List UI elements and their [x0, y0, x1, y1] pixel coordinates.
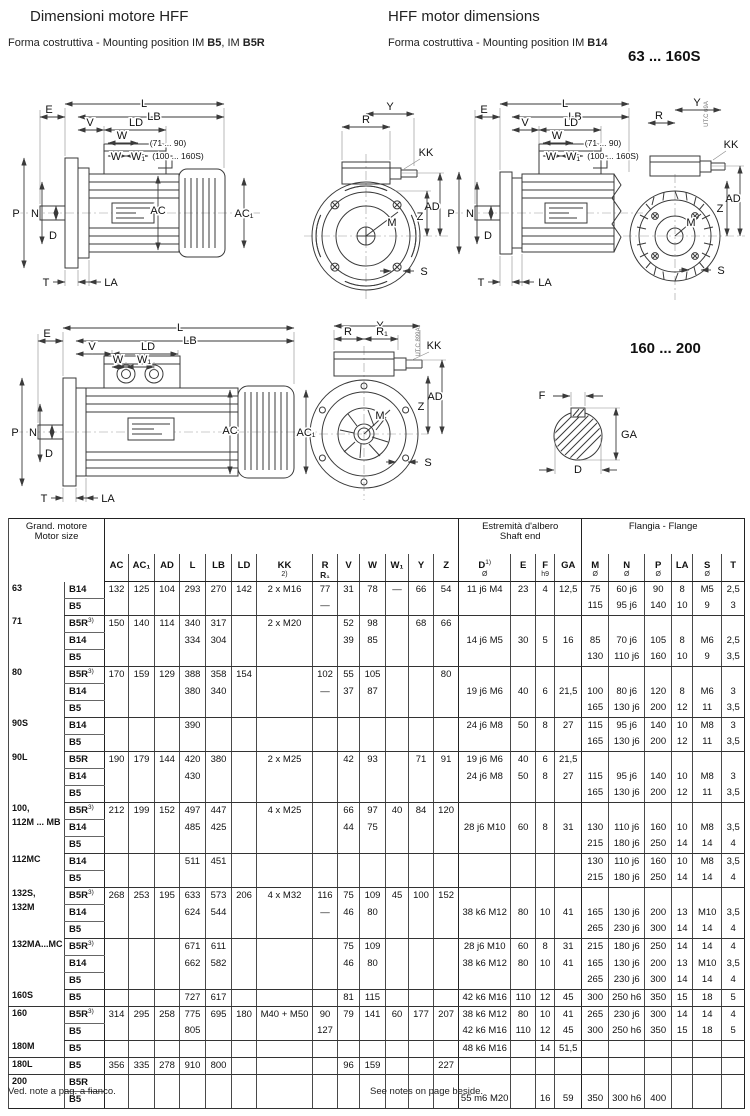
cell-AC1: 140 — [129, 615, 155, 632]
cell-LB: 611 — [206, 938, 232, 955]
page-title-english: HFF motor dimensions — [388, 8, 540, 25]
cell-F — [536, 802, 555, 819]
cell-Z — [434, 1023, 459, 1040]
cell-T: 4 — [722, 870, 745, 887]
cell-D: 19 j6 M6 — [459, 751, 511, 768]
drawing-b5-front-view: Y R KK AD Z M S — [300, 96, 452, 308]
cell-LD — [232, 683, 257, 700]
cell-AD — [155, 819, 180, 836]
cell-L — [180, 734, 206, 751]
cell-AD — [155, 717, 180, 734]
cell-AD — [155, 870, 180, 887]
cell-GA — [555, 1074, 582, 1091]
dim-label-M: M — [686, 217, 695, 229]
cell-GA: 27 — [555, 717, 582, 734]
cell-M — [582, 887, 609, 904]
cell-W1 — [386, 972, 409, 989]
cell-AD: 104 — [155, 582, 180, 599]
cell-Z: 227 — [434, 1057, 459, 1074]
cell-N — [609, 615, 645, 632]
cell-E — [511, 1091, 536, 1108]
dim-label-D: D — [484, 230, 492, 242]
cell-AD — [155, 632, 180, 649]
cell-T — [722, 666, 745, 683]
cell-LA: 8 — [672, 683, 693, 700]
cell-N: 95 j6 — [609, 768, 645, 785]
cell-M: 165 — [582, 734, 609, 751]
cell-M — [582, 751, 609, 768]
motor-size-cell: 90L — [9, 751, 65, 802]
cell-LA: 12 — [672, 734, 693, 751]
cell-LA: 10 — [672, 853, 693, 870]
cell-N: 230 j6 — [609, 921, 645, 938]
dim-label-D: D — [49, 230, 57, 242]
cell-Y — [409, 836, 434, 853]
cell-P: 250 — [645, 938, 672, 955]
dim-label-S: S — [717, 265, 724, 277]
cell-T: 3,5 — [722, 785, 745, 802]
cell-LA — [672, 1091, 693, 1108]
subtitle-right: Forma costruttiva - Mounting position IM… — [388, 37, 607, 49]
cell-M: 215 — [582, 870, 609, 887]
cell-E: 80 — [511, 1006, 536, 1023]
cell-V — [338, 921, 360, 938]
dim-label-M: M — [387, 217, 396, 229]
motor-size-cell: 100, 112M ... MB — [9, 802, 65, 853]
cell-N: 70 j6 — [609, 632, 645, 649]
cell-P: 400 — [645, 1091, 672, 1108]
dim-label-D: D — [574, 464, 582, 476]
cell-LA: 13 — [672, 955, 693, 972]
cell-D — [459, 785, 511, 802]
mounting-variant-cell: B5R3) — [65, 802, 105, 819]
table-row: B5165130 j620012113,5 — [9, 785, 745, 802]
cell-GA — [555, 666, 582, 683]
cell-R: 116 — [313, 887, 338, 904]
dim-label-L: L — [141, 98, 147, 110]
cell-P: 350 — [645, 989, 672, 1006]
cell-S: M5 — [693, 582, 722, 599]
cell-KK — [257, 1091, 313, 1108]
cell-V — [338, 598, 360, 615]
cell-M: 265 — [582, 921, 609, 938]
cell-P: 200 — [645, 955, 672, 972]
mounting-variant-cell: B5R3) — [65, 666, 105, 683]
cell-AC: 132 — [105, 582, 129, 599]
cell-P: 300 — [645, 1006, 672, 1023]
mounting-variant-cell: B5 — [65, 1023, 105, 1040]
cell-S — [693, 1040, 722, 1057]
cell-F — [536, 615, 555, 632]
cell-M: 165 — [582, 785, 609, 802]
table-row: B14662582468038 k6 M12801041165130 j6200… — [9, 955, 745, 972]
table-row: 160B5R3)314295258775695180M40 + M5090791… — [9, 1006, 745, 1023]
cell-KK — [257, 717, 313, 734]
cell-E: 60 — [511, 938, 536, 955]
cell-V: 44 — [338, 819, 360, 836]
cell-S — [693, 615, 722, 632]
cell-V: 39 — [338, 632, 360, 649]
cell-F: 8 — [536, 819, 555, 836]
cell-V: 96 — [338, 1057, 360, 1074]
cell-LD — [232, 989, 257, 1006]
cell-M: 350 — [582, 1091, 609, 1108]
cell-W1 — [386, 1023, 409, 1040]
cell-AD — [155, 853, 180, 870]
cell-LB: 340 — [206, 683, 232, 700]
cell-R — [313, 853, 338, 870]
cell-L: 662 — [180, 955, 206, 972]
cell-P: 200 — [645, 904, 672, 921]
cell-GA: 41 — [555, 904, 582, 921]
cell-KK — [257, 683, 313, 700]
mounting-variant-cell: B5 — [65, 700, 105, 717]
table-row: B5—11595 j61401093 — [9, 598, 745, 615]
cell-W: 109 — [360, 887, 386, 904]
dim-label-KK: KK — [427, 340, 442, 352]
cell-AC1 — [129, 683, 155, 700]
cell-AC1 — [129, 819, 155, 836]
mounting-variant-cell: B14 — [65, 717, 105, 734]
cell-F: 10 — [536, 1006, 555, 1023]
cell-L: 380 — [180, 683, 206, 700]
dimension-lines: L LB E V LD W (71 ... 90) W W₁ (100 ... … — [12, 98, 253, 289]
cell-AC1: 179 — [129, 751, 155, 768]
flange-header-label: Flangia - Flange — [582, 522, 744, 532]
cell-S: M6 — [693, 683, 722, 700]
cell-R: 77 — [313, 582, 338, 599]
cell-V: 46 — [338, 904, 360, 921]
cell-W1 — [386, 598, 409, 615]
cell-LD — [232, 904, 257, 921]
cell-D — [459, 887, 511, 904]
cell-Z — [434, 1040, 459, 1057]
cell-KK: 2 x M20 — [257, 615, 313, 632]
cell-AC: 150 — [105, 615, 129, 632]
cell-R — [313, 802, 338, 819]
dim-label-V: V — [88, 341, 96, 353]
cell-F — [536, 700, 555, 717]
size-range-bottom: 160 ... 200 — [630, 340, 701, 357]
cell-F — [536, 887, 555, 904]
cell-W: 75 — [360, 819, 386, 836]
cell-AC1 — [129, 870, 155, 887]
size-range-top: 63 ... 160S — [628, 48, 701, 65]
cell-T: 4 — [722, 972, 745, 989]
cell-E — [511, 802, 536, 819]
cell-GA: 21,5 — [555, 751, 582, 768]
dim-label-P: P — [11, 427, 18, 439]
cell-LA: 14 — [672, 921, 693, 938]
cell-AC — [105, 1023, 129, 1040]
cell-LA: 12 — [672, 785, 693, 802]
cell-W1 — [386, 751, 409, 768]
cell-R — [313, 751, 338, 768]
cell-KK: 4 x M32 — [257, 887, 313, 904]
cell-R — [313, 768, 338, 785]
cell-LD — [232, 955, 257, 972]
cell-V: 46 — [338, 955, 360, 972]
cell-Z — [434, 683, 459, 700]
cell-M: 130 — [582, 649, 609, 666]
dim-label-LA: LA — [101, 493, 115, 505]
cell-S: 9 — [693, 598, 722, 615]
cell-Z — [434, 717, 459, 734]
cell-E: 80 — [511, 904, 536, 921]
cell-AC: 212 — [105, 802, 129, 819]
cell-V — [338, 1091, 360, 1108]
cell-V: 81 — [338, 989, 360, 1006]
dim-label-LD: LD — [141, 341, 155, 353]
cell-AD: 114 — [155, 615, 180, 632]
cell-AC: 170 — [105, 666, 129, 683]
cell-N: 130 j6 — [609, 734, 645, 751]
cell-W1: 45 — [386, 887, 409, 904]
cell-R — [313, 700, 338, 717]
cell-L — [180, 836, 206, 853]
cell-W1 — [386, 683, 409, 700]
cell-W — [360, 785, 386, 802]
cell-W — [360, 768, 386, 785]
cell-W1 — [386, 836, 409, 853]
cell-P: 160 — [645, 819, 672, 836]
table-row: B5215180 j625014144 — [9, 836, 745, 853]
cell-N: 230 j6 — [609, 1006, 645, 1023]
cell-KK — [257, 1023, 313, 1040]
cell-F: 12 — [536, 989, 555, 1006]
cell-S: M10 — [693, 904, 722, 921]
cell-S: 14 — [693, 938, 722, 955]
cell-D: 14 j6 M5 — [459, 632, 511, 649]
cell-LB — [206, 1023, 232, 1040]
cell-M: 300 — [582, 1023, 609, 1040]
cell-Y: 71 — [409, 751, 434, 768]
col-header-LD: LD — [232, 554, 257, 582]
motor-outline — [449, 144, 745, 300]
cell-AC1 — [129, 1023, 155, 1040]
cell-S — [693, 1057, 722, 1074]
drawing-b5-side-view: L LB E V LD W (71 ... 90) W W₁ (100 ... … — [8, 86, 300, 308]
shaft-end-header: Estremità d'albero Shaft end — [459, 519, 582, 555]
cell-W: 78 — [360, 582, 386, 599]
cell-AC1 — [129, 938, 155, 955]
cell-D: 28 j6 M10 — [459, 938, 511, 955]
cell-GA — [555, 649, 582, 666]
cell-T: 5 — [722, 1023, 745, 1040]
dim-label-AC: AC — [222, 425, 237, 437]
cell-LB: 380 — [206, 751, 232, 768]
footnote-italian: Ved. note a pag. a fianco. — [8, 1086, 116, 1097]
cell-N: 130 j6 — [609, 904, 645, 921]
dim-label-LA: LA — [538, 277, 552, 289]
cell-V — [338, 1023, 360, 1040]
cell-P: 200 — [645, 785, 672, 802]
motor-size-cell: 160 — [9, 1006, 65, 1040]
cell-Y — [409, 904, 434, 921]
cell-GA — [555, 1057, 582, 1074]
motor-size-cell: 132MA...MC — [9, 938, 65, 989]
cell-E — [511, 700, 536, 717]
col-header-KK: KK2) — [257, 554, 313, 582]
table-row: 160SB57276178111542 k6 M161101245300250 … — [9, 989, 745, 1006]
cell-V — [338, 1040, 360, 1057]
cell-D: 28 j6 M10 — [459, 819, 511, 836]
cell-R — [313, 836, 338, 853]
cell-LA: 8 — [672, 632, 693, 649]
cell-N: 110 j6 — [609, 649, 645, 666]
dim-label-L: L — [562, 98, 568, 110]
cell-KK — [257, 632, 313, 649]
cell-LA: 13 — [672, 904, 693, 921]
col-header-P: PØ — [645, 554, 672, 582]
cell-W: 109 — [360, 938, 386, 955]
cell-E: 80 — [511, 955, 536, 972]
dim-label-KK: KK — [724, 139, 739, 151]
cell-KK: 2 x M16 — [257, 582, 313, 599]
cell-M — [582, 1074, 609, 1091]
cell-GA: 45 — [555, 1023, 582, 1040]
cell-LA — [672, 802, 693, 819]
cell-GA — [555, 802, 582, 819]
cell-M: 115 — [582, 717, 609, 734]
mounting-variant-cell: B5R3) — [65, 1006, 105, 1023]
cell-LB — [206, 717, 232, 734]
dim-label-R: R — [362, 114, 370, 126]
shaft-section-outline — [522, 406, 630, 466]
cell-D — [459, 853, 511, 870]
mounting-variant-cell: B5 — [65, 785, 105, 802]
cell-R — [313, 989, 338, 1006]
col-header-L: L — [180, 554, 206, 582]
col-header-V: V — [338, 554, 360, 582]
drawing-code-top: UT.C 69A — [704, 101, 710, 127]
cell-AC — [105, 683, 129, 700]
cell-N — [609, 1040, 645, 1057]
dim-label-T: T — [478, 277, 485, 289]
cell-AD: 195 — [155, 887, 180, 904]
dim-label-W1: W₁ — [566, 151, 580, 163]
cell-F — [536, 972, 555, 989]
table-row: B5130110 j61601093,5 — [9, 649, 745, 666]
cell-LD — [232, 1023, 257, 1040]
cell-T: 4 — [722, 921, 745, 938]
cell-Z — [434, 921, 459, 938]
cell-Z: 120 — [434, 802, 459, 819]
cell-L: 390 — [180, 717, 206, 734]
mounting-variant-cell: B5 — [65, 598, 105, 615]
cell-T — [722, 887, 745, 904]
motor-size-cell: 71 — [9, 615, 65, 666]
cell-AC: 190 — [105, 751, 129, 768]
dim-label-LD: LD — [564, 117, 578, 129]
cell-LD — [232, 615, 257, 632]
col-header-D: D1)Ø — [459, 554, 511, 582]
dim-label-KK: KK — [419, 147, 434, 159]
cell-R — [313, 819, 338, 836]
cell-T: 3 — [722, 768, 745, 785]
cell-D: 38 k6 M12 — [459, 955, 511, 972]
cell-Z: 207 — [434, 1006, 459, 1023]
cell-V: 37 — [338, 683, 360, 700]
cell-LA: 8 — [672, 582, 693, 599]
cell-T: 4 — [722, 836, 745, 853]
cell-D — [459, 802, 511, 819]
mounting-variant-cell: B5R3) — [65, 938, 105, 955]
cell-F: 6 — [536, 751, 555, 768]
cell-W — [360, 649, 386, 666]
subtitle-right-b14: B14 — [587, 37, 607, 49]
cell-GA: 16 — [555, 632, 582, 649]
cell-E — [511, 870, 536, 887]
cell-L — [180, 1074, 206, 1091]
cell-LB: 317 — [206, 615, 232, 632]
cell-LB — [206, 598, 232, 615]
cell-LB: 800 — [206, 1057, 232, 1074]
cell-D — [459, 598, 511, 615]
cell-F — [536, 649, 555, 666]
cell-GA: 31 — [555, 938, 582, 955]
cell-AC — [105, 972, 129, 989]
dim-label-L: L — [177, 322, 183, 334]
cell-LB — [206, 734, 232, 751]
dim-label-Z: Z — [717, 203, 724, 215]
cell-AC1 — [129, 717, 155, 734]
table-row: B5165130 j620012113,5 — [9, 700, 745, 717]
dim-label-AC: AC — [150, 205, 165, 217]
cell-KK — [257, 649, 313, 666]
cell-N: 110 j6 — [609, 853, 645, 870]
cell-LB: 573 — [206, 887, 232, 904]
cell-T: 3,5 — [722, 904, 745, 921]
cell-L: 727 — [180, 989, 206, 1006]
dim-note-100-160S: (100 ... 160S) — [587, 151, 639, 161]
cell-N — [609, 1074, 645, 1091]
cell-KK — [257, 955, 313, 972]
cell-LD — [232, 632, 257, 649]
cell-E: 40 — [511, 683, 536, 700]
cell-KK — [257, 870, 313, 887]
dim-label-Z: Z — [418, 401, 425, 413]
cell-LB — [206, 1091, 232, 1108]
mounting-variant-cell: B14 — [65, 632, 105, 649]
cell-AC1: 253 — [129, 887, 155, 904]
cell-AC — [105, 819, 129, 836]
cell-L: 671 — [180, 938, 206, 955]
cell-W1 — [386, 785, 409, 802]
cell-P — [645, 802, 672, 819]
cell-T: 4 — [722, 938, 745, 955]
dim-label-V: V — [86, 117, 94, 129]
cell-LA: 12 — [672, 700, 693, 717]
cell-GA — [555, 700, 582, 717]
cell-AD — [155, 785, 180, 802]
cell-E — [511, 1057, 536, 1074]
dim-label-P: P — [447, 208, 454, 220]
cell-KK — [257, 598, 313, 615]
motor-front-outline — [304, 154, 448, 302]
cell-T — [722, 615, 745, 632]
cell-T — [722, 802, 745, 819]
cell-AC — [105, 632, 129, 649]
table-row: 132MA...MCB5R3)6716117510928 j6 M1060831… — [9, 938, 745, 955]
dim-label-D: D — [45, 448, 53, 460]
mounting-variant-cell: B5 — [65, 921, 105, 938]
cell-T — [722, 1091, 745, 1108]
cell-T: 3,5 — [722, 649, 745, 666]
col-header-LA: LA — [672, 554, 693, 582]
cell-W — [360, 1040, 386, 1057]
cell-L — [180, 1091, 206, 1108]
